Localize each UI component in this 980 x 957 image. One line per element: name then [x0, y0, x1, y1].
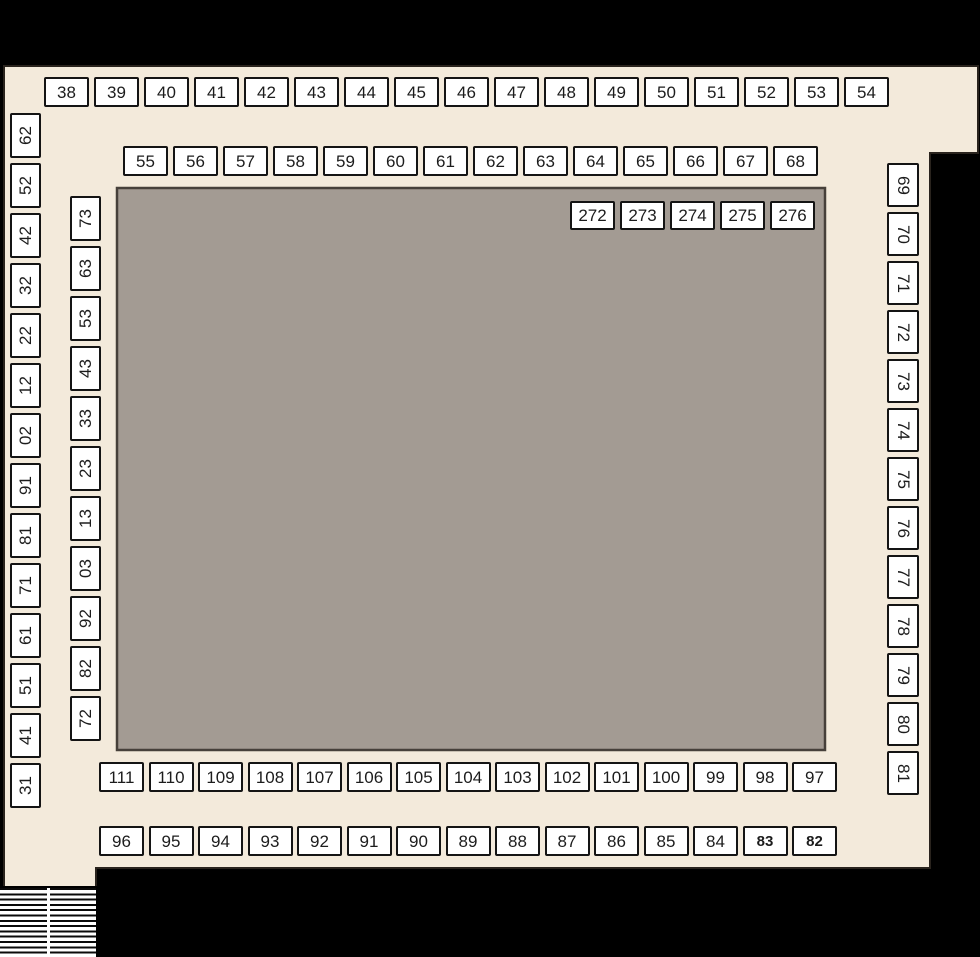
booth-label: 94	[211, 833, 230, 850]
booth-column-left-inner: 7363534333231303928272	[70, 196, 101, 741]
booth-label: 48	[557, 84, 576, 101]
booth-104[interactable]: 104	[446, 762, 491, 792]
booth-label: 111	[109, 769, 135, 786]
booth-62[interactable]: 62	[473, 146, 518, 176]
booth-row-hall-inner: 272273274275276	[570, 201, 815, 230]
booth-label: 02	[17, 426, 34, 445]
booth-79[interactable]: 79	[887, 653, 919, 697]
booth-label: 03	[77, 559, 94, 578]
booth-73[interactable]: 73	[887, 359, 919, 403]
booth-274[interactable]: 274	[670, 201, 715, 230]
booth-86[interactable]: 86	[594, 826, 639, 856]
booth-83[interactable]: 83	[743, 826, 788, 856]
floor-plan-canvas	[0, 0, 980, 957]
booth-label: 62	[17, 126, 34, 145]
booth-label: 55	[136, 153, 155, 170]
booth-label: 12	[17, 376, 34, 395]
booth-31[interactable]: 13	[70, 496, 101, 541]
booth-label: 89	[459, 833, 478, 850]
booth-label: 91	[360, 833, 379, 850]
booth-label: 101	[602, 769, 630, 786]
booth-47[interactable]: 47	[494, 77, 539, 107]
booth-label: 81	[894, 764, 911, 783]
booth-19[interactable]: 91	[10, 463, 41, 508]
booth-label: 105	[404, 769, 432, 786]
booth-label: 70	[894, 225, 911, 244]
booth-label: 51	[707, 84, 726, 101]
booth-89[interactable]: 89	[446, 826, 491, 856]
booth-272[interactable]: 272	[570, 201, 615, 230]
booth-label: 92	[77, 609, 94, 628]
booth-43[interactable]: 43	[294, 77, 339, 107]
booth-label: 102	[553, 769, 581, 786]
booth-label: 44	[357, 84, 376, 101]
booth-24[interactable]: 42	[10, 213, 41, 258]
booth-102[interactable]: 102	[545, 762, 590, 792]
booth-14[interactable]: 41	[10, 713, 41, 758]
booth-label: 92	[310, 833, 329, 850]
booth-21[interactable]: 12	[10, 363, 41, 408]
booth-35[interactable]: 53	[70, 296, 101, 341]
booth-96[interactable]: 96	[99, 826, 144, 856]
booth-label: 78	[894, 617, 911, 636]
booth-label: 80	[894, 715, 911, 734]
booth-60[interactable]: 60	[373, 146, 418, 176]
booth-label: 65	[636, 153, 655, 170]
stair-steps-right	[50, 888, 97, 957]
booth-label: 45	[407, 84, 426, 101]
booth-41[interactable]: 41	[194, 77, 239, 107]
booth-label: 74	[894, 421, 911, 440]
booth-26[interactable]: 62	[10, 113, 41, 158]
booth-34[interactable]: 43	[70, 346, 101, 391]
booth-94[interactable]: 94	[198, 826, 243, 856]
booth-label: 51	[17, 676, 34, 695]
booth-46[interactable]: 46	[444, 77, 489, 107]
booth-105[interactable]: 105	[396, 762, 441, 792]
booth-80[interactable]: 80	[887, 702, 919, 746]
booth-label: 276	[778, 207, 806, 224]
booth-82[interactable]: 82	[792, 826, 837, 856]
booth-110[interactable]: 110	[149, 762, 194, 792]
booth-label: 61	[17, 626, 34, 645]
booth-label: 38	[57, 84, 76, 101]
booth-63[interactable]: 63	[523, 146, 568, 176]
booth-25[interactable]: 52	[10, 163, 41, 208]
booth-16[interactable]: 61	[10, 613, 41, 658]
booth-label: 71	[894, 274, 911, 293]
booth-label: 85	[657, 833, 676, 850]
booth-label: 32	[17, 276, 34, 295]
booth-20[interactable]: 02	[10, 413, 41, 458]
booth-57[interactable]: 57	[223, 146, 268, 176]
booth-label: 66	[686, 153, 705, 170]
booth-row-top: 3839404142434445464748495051525354	[44, 77, 889, 107]
booth-label: 43	[77, 359, 94, 378]
booth-68[interactable]: 68	[773, 146, 818, 176]
booth-label: 53	[807, 84, 826, 101]
booth-label: 90	[409, 833, 428, 850]
booth-30[interactable]: 03	[70, 546, 101, 591]
booth-row-bottom-inner: 1111101091081071061051041031021011009998…	[99, 762, 837, 792]
booth-39[interactable]: 39	[94, 77, 139, 107]
booth-column-right: 69707172737475767778798081	[887, 163, 919, 795]
stair-steps-left	[0, 888, 47, 957]
booth-label: 23	[77, 459, 94, 478]
booth-50[interactable]: 50	[644, 77, 689, 107]
booth-label: 33	[77, 409, 94, 428]
booth-label: 272	[578, 207, 606, 224]
booth-label: 22	[17, 326, 34, 345]
booth-54[interactable]: 54	[844, 77, 889, 107]
booth-label: 75	[894, 470, 911, 489]
booth-label: 59	[336, 153, 355, 170]
booth-label: 41	[17, 726, 34, 745]
booth-label: 73	[77, 209, 94, 228]
booth-label: 110	[157, 769, 184, 786]
booth-17[interactable]: 71	[10, 563, 41, 608]
booth-label: 41	[207, 84, 226, 101]
booth-88[interactable]: 88	[495, 826, 540, 856]
booth-56[interactable]: 56	[173, 146, 218, 176]
booth-label: 73	[894, 372, 911, 391]
booth-53[interactable]: 53	[794, 77, 839, 107]
booth-label: 67	[736, 153, 755, 170]
booth-label: 61	[436, 153, 455, 170]
booth-90[interactable]: 90	[396, 826, 441, 856]
floor-plan: 3839404142434445464748495051525354 55565…	[0, 0, 980, 957]
booth-label: 53	[77, 309, 94, 328]
booth-87[interactable]: 87	[545, 826, 590, 856]
booth-label: 91	[17, 476, 34, 495]
booth-273[interactable]: 273	[620, 201, 665, 230]
booth-100[interactable]: 100	[644, 762, 689, 792]
booth-33[interactable]: 33	[70, 396, 101, 441]
booth-37[interactable]: 73	[70, 196, 101, 241]
booth-276[interactable]: 276	[770, 201, 815, 230]
booth-78[interactable]: 78	[887, 604, 919, 648]
booth-97[interactable]: 97	[792, 762, 837, 792]
booth-66[interactable]: 66	[673, 146, 718, 176]
booth-23[interactable]: 32	[10, 263, 41, 308]
booth-label: 100	[652, 769, 680, 786]
booth-15[interactable]: 51	[10, 663, 41, 708]
booth-label: 87	[558, 833, 577, 850]
booth-label: 69	[894, 176, 911, 195]
booth-label: 273	[628, 207, 656, 224]
booth-65[interactable]: 65	[623, 146, 668, 176]
booth-label: 83	[757, 834, 774, 849]
booth-32[interactable]: 23	[70, 446, 101, 491]
booth-label: 63	[77, 259, 94, 278]
booth-label: 71	[17, 576, 34, 595]
booth-76[interactable]: 76	[887, 506, 919, 550]
booth-label: 46	[457, 84, 476, 101]
booth-label: 58	[286, 153, 305, 170]
booth-99[interactable]: 99	[693, 762, 738, 792]
booth-label: 81	[17, 526, 34, 545]
booth-label: 77	[894, 568, 911, 587]
booth-row-bottom-outer: 969594939291908988878685848382	[99, 826, 837, 856]
booth-71[interactable]: 71	[887, 261, 919, 305]
booth-58[interactable]: 58	[273, 146, 318, 176]
booth-label: 72	[894, 323, 911, 342]
booth-55[interactable]: 55	[123, 146, 168, 176]
booth-label: 108	[256, 769, 284, 786]
booth-45[interactable]: 45	[394, 77, 439, 107]
booth-label: 88	[508, 833, 527, 850]
booth-109[interactable]: 109	[198, 762, 243, 792]
booth-label: 68	[786, 153, 805, 170]
booth-label: 63	[536, 153, 555, 170]
booth-label: 43	[307, 84, 326, 101]
booth-98[interactable]: 98	[743, 762, 788, 792]
booth-91[interactable]: 91	[347, 826, 392, 856]
booth-label: 13	[77, 509, 94, 528]
booth-36[interactable]: 63	[70, 246, 101, 291]
booth-107[interactable]: 107	[297, 762, 342, 792]
booth-label: 109	[206, 769, 234, 786]
booth-70[interactable]: 70	[887, 212, 919, 256]
booth-label: 54	[857, 84, 876, 101]
booth-label: 82	[806, 834, 823, 849]
booth-label: 84	[706, 833, 725, 850]
booth-28[interactable]: 82	[70, 646, 101, 691]
booth-51[interactable]: 51	[694, 77, 739, 107]
booth-label: 49	[607, 84, 626, 101]
booth-95[interactable]: 95	[149, 826, 194, 856]
booth-77[interactable]: 77	[887, 555, 919, 599]
booth-49[interactable]: 49	[594, 77, 639, 107]
booth-61[interactable]: 61	[423, 146, 468, 176]
booth-label: 275	[728, 207, 756, 224]
booth-74[interactable]: 74	[887, 408, 919, 452]
booth-52[interactable]: 52	[744, 77, 789, 107]
booth-13[interactable]: 31	[10, 763, 41, 808]
booth-label: 52	[17, 176, 34, 195]
booth-40[interactable]: 40	[144, 77, 189, 107]
booth-label: 97	[805, 769, 824, 786]
booth-81[interactable]: 81	[887, 751, 919, 795]
booth-label: 52	[757, 84, 776, 101]
booth-label: 96	[112, 833, 131, 850]
booth-row-upper-inner: 5556575859606162636465666768	[123, 146, 818, 176]
booth-label: 95	[162, 833, 181, 850]
booth-label: 57	[236, 153, 255, 170]
booth-85[interactable]: 85	[644, 826, 689, 856]
booth-44[interactable]: 44	[344, 77, 389, 107]
booth-84[interactable]: 84	[693, 826, 738, 856]
booth-label: 64	[586, 153, 605, 170]
booth-label: 106	[355, 769, 383, 786]
booth-72[interactable]: 72	[887, 310, 919, 354]
booth-label: 39	[107, 84, 126, 101]
booth-label: 98	[756, 769, 775, 786]
booth-label: 103	[503, 769, 531, 786]
booth-18[interactable]: 81	[10, 513, 41, 558]
booth-69[interactable]: 69	[887, 163, 919, 207]
booth-label: 72	[77, 709, 94, 728]
booth-111[interactable]: 111	[99, 762, 144, 792]
booth-48[interactable]: 48	[544, 77, 589, 107]
booth-108[interactable]: 108	[248, 762, 293, 792]
booth-label: 62	[486, 153, 505, 170]
booth-93[interactable]: 93	[248, 826, 293, 856]
booth-label: 60	[386, 153, 405, 170]
booth-42[interactable]: 42	[244, 77, 289, 107]
booth-label: 42	[17, 226, 34, 245]
booth-label: 50	[657, 84, 676, 101]
booth-label: 99	[706, 769, 725, 786]
stairs-icon	[0, 886, 100, 957]
booth-27[interactable]: 72	[70, 696, 101, 741]
booth-59[interactable]: 59	[323, 146, 368, 176]
booth-75[interactable]: 75	[887, 457, 919, 501]
booth-92[interactable]: 92	[297, 826, 342, 856]
booth-64[interactable]: 64	[573, 146, 618, 176]
booth-label: 86	[607, 833, 626, 850]
booth-29[interactable]: 92	[70, 596, 101, 641]
exhibit-hall-area	[117, 188, 825, 750]
booth-column-left-outer: 6252423222120291817161514131	[10, 113, 41, 808]
booth-label: 76	[894, 519, 911, 538]
booth-103[interactable]: 103	[495, 762, 540, 792]
booth-22[interactable]: 22	[10, 313, 41, 358]
booth-label: 31	[17, 776, 34, 795]
booth-label: 104	[454, 769, 482, 786]
booth-label: 93	[261, 833, 280, 850]
booth-label: 82	[77, 659, 94, 678]
booth-106[interactable]: 106	[347, 762, 392, 792]
booth-38[interactable]: 38	[44, 77, 89, 107]
booth-label: 42	[257, 84, 276, 101]
booth-101[interactable]: 101	[594, 762, 639, 792]
booth-67[interactable]: 67	[723, 146, 768, 176]
booth-label: 274	[678, 207, 706, 224]
booth-label: 56	[186, 153, 205, 170]
booth-label: 47	[507, 84, 526, 101]
booth-275[interactable]: 275	[720, 201, 765, 230]
booth-label: 107	[305, 769, 333, 786]
booth-label: 40	[157, 84, 176, 101]
booth-label: 79	[894, 666, 911, 685]
